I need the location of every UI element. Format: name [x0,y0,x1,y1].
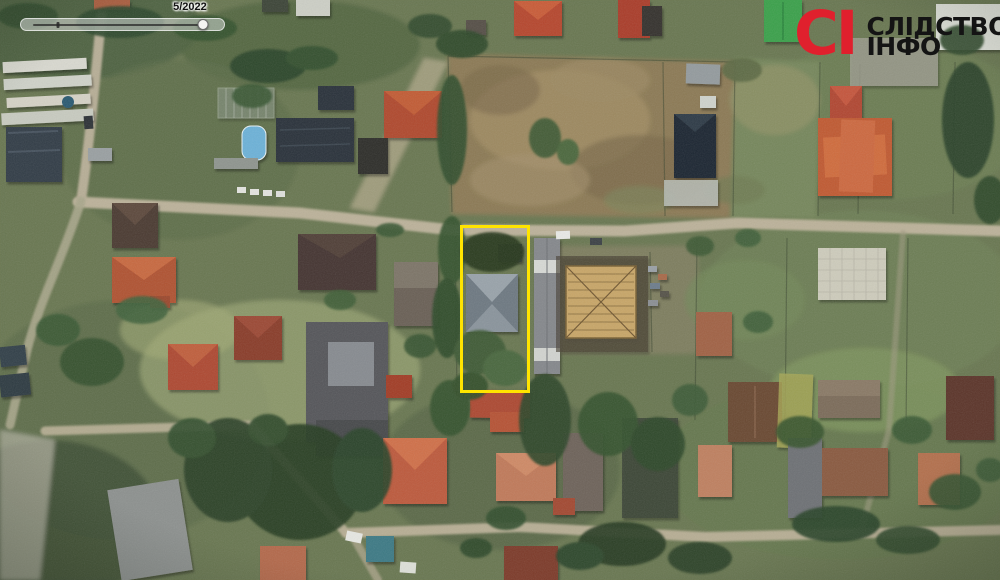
satellite-imagery-canvas[interactable] [0,0,1000,580]
vignette-overlay [0,0,1000,580]
historical-imagery-timeline[interactable]: 5/2022 [20,6,225,34]
watermark-name: СЛІДСТВО ІНФО [866,17,1000,57]
timeline-tick [56,22,59,28]
slidstvo-info-watermark: СІ СЛІДСТВО ІНФО [794,8,1000,60]
timeline-handle[interactable] [197,19,208,30]
timeline-track[interactable]: 5/2022 [33,24,208,26]
satellite-map-view: 5/2022 СІ СЛІДСТВО ІНФО [0,0,1000,580]
watermark-abbr: СІ [794,8,855,60]
timeline-date-label: 5/2022 [173,1,207,13]
